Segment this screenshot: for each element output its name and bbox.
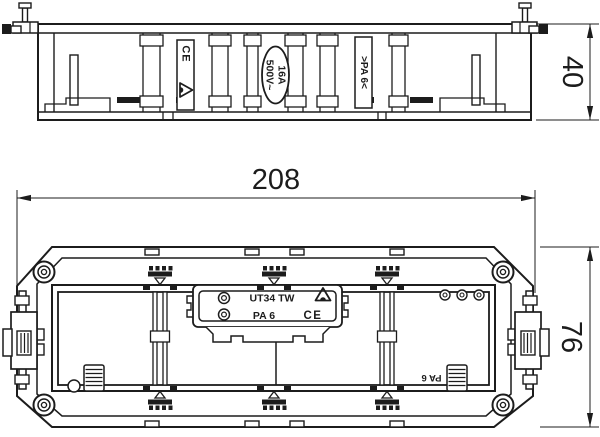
rating-current: 16A [276,65,288,85]
ce-label: CE [177,40,194,110]
dim-height-text: 40 [556,56,588,88]
installation-box-drawing: CE 500V~ 16A >PA 6< 40 208 [0,0,600,437]
ce-mark-side: CE [180,45,192,62]
nameplate-material: PA 6 [253,310,275,322]
side-view: CE 500V~ 16A >PA 6< 40 [2,3,599,120]
corner-screw-bottom-left [34,395,55,416]
rating-oval: 500V~ 16A [262,47,289,104]
material-label-text: >PA 6< [358,56,369,89]
nameplate-product: UT34 TW [250,293,295,305]
technical-drawing-page: CE 500V~ 16A >PA 6< 40 208 [0,0,600,437]
mounting-holes [440,290,484,300]
corner-screw-top-right [493,262,514,283]
material-label: >PA 6< [355,37,372,108]
plan-view: 208 UT34 TW PA 6 CE [3,164,599,427]
material-marking-rotated: PA 6 [421,372,441,383]
dimension-height-40: 40 [536,24,599,120]
corner-screw-top-left [34,262,55,283]
leveling-pin-left [2,3,38,34]
dim-width-text: 208 [252,164,300,196]
rating-voltage: 500V~ [264,60,276,91]
leveling-pin-right [512,3,548,34]
nameplate-ce-mark: CE [304,310,323,322]
corner-screw-bottom-right [493,395,514,416]
dim-depth-text: 76 [555,321,587,353]
